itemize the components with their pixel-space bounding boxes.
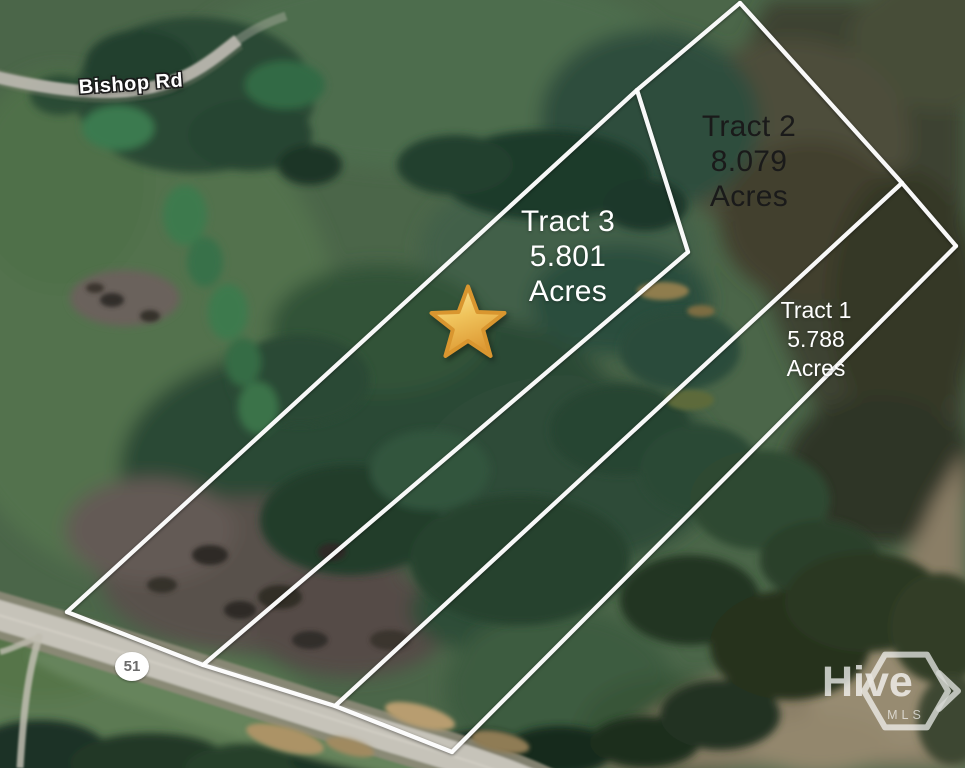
boundary-line-tract1-ne-cap: [902, 183, 956, 246]
tract-1-acreage: 5.788: [781, 325, 852, 354]
tract-2-unit: Acres: [702, 179, 796, 214]
hive-mls-text: MLS: [887, 708, 925, 722]
hive-mls-watermark: Hive MLS: [815, 630, 965, 745]
tract-3-acreage: 5.801: [521, 239, 615, 274]
boundary-line-tract1-nw: [335, 183, 902, 706]
aerial-parcel-map: Tract 2 8.079 Acres Tract 3 5.801 Acres …: [0, 0, 965, 768]
tract-2-label: Tract 2 8.079 Acres: [702, 109, 796, 214]
highway-51-number: 51: [124, 658, 141, 675]
tract-1-unit: Acres: [781, 354, 852, 383]
hive-brand-text: Hive: [822, 656, 913, 708]
tract-3-unit: Acres: [521, 274, 615, 309]
boundary-line-tract2-nw: [637, 3, 740, 90]
tract-1-name: Tract 1: [781, 296, 852, 325]
highway-51-badge: 51: [115, 652, 149, 681]
tract-3-label: Tract 3 5.801 Acres: [521, 204, 615, 309]
boundary-line-tract3-ne-cap: [637, 90, 688, 252]
tract-2-name: Tract 2: [702, 109, 796, 144]
boundary-line-road-frontage: [67, 612, 452, 752]
boundary-line-tract3-nw: [67, 90, 637, 612]
star-marker-icon: [428, 282, 508, 363]
tract-1-label: Tract 1 5.788 Acres: [781, 296, 852, 383]
tract-3-name: Tract 3: [521, 204, 615, 239]
tract-2-acreage: 8.079: [702, 144, 796, 179]
